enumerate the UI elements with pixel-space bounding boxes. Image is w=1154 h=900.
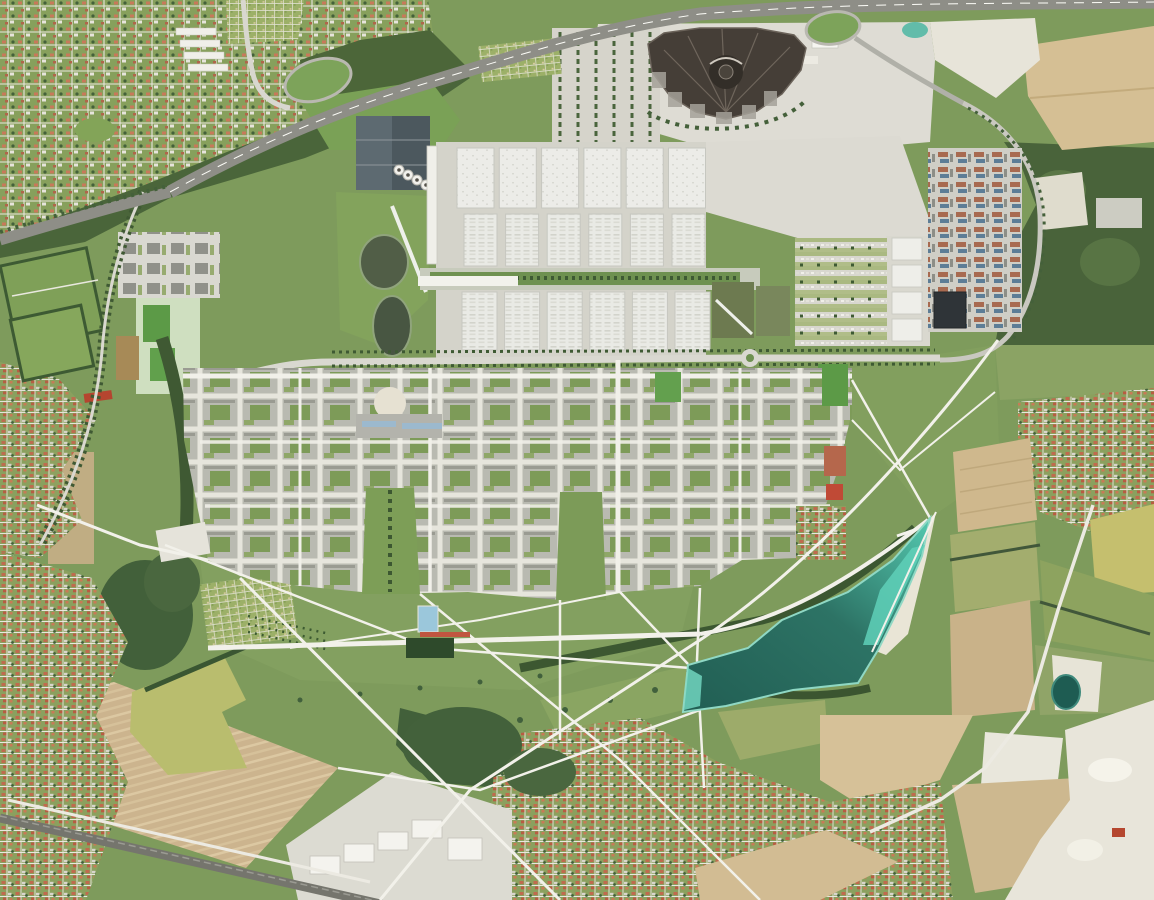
field-right-olive-1 — [950, 522, 1040, 612]
park-bush-scatter-2-4 — [478, 680, 483, 685]
sports-pitch-east — [822, 368, 848, 406]
fan-wing-4 — [716, 112, 732, 124]
field-right-speckled — [950, 600, 1035, 718]
formal-garden-2 — [10, 305, 93, 381]
pond-se — [1052, 675, 1080, 709]
allotment-gardens-sw — [200, 572, 298, 650]
ne-small-hall-4 — [892, 319, 922, 341]
exhibition-hall-row1-6 — [669, 148, 706, 208]
solar-roof-hall — [934, 292, 966, 328]
sports-pitch-dirt — [116, 336, 139, 380]
park-bush-scatter-1-4 — [652, 687, 658, 693]
gravel-pit-ne — [1035, 172, 1088, 230]
pond-ne-small — [902, 22, 928, 38]
exhibition-hall-row3-6 — [675, 292, 710, 350]
rowhouse-cluster — [796, 506, 846, 560]
apartment-row-4 — [188, 64, 228, 71]
apartment-row-1 — [176, 28, 216, 35]
industrial-shed-5 — [448, 838, 482, 860]
exhibition-hall-row2-1 — [464, 214, 497, 266]
green-roof-hall-2 — [756, 286, 790, 336]
field-right-tan — [953, 438, 1037, 532]
exhibition-hall-row2-2 — [506, 214, 539, 266]
apartment-row-2 — [180, 40, 220, 47]
office-campus-west — [118, 232, 220, 298]
woods-ne-light-2 — [1080, 238, 1140, 286]
fan-wing-3 — [690, 104, 705, 118]
park-red-track — [420, 632, 470, 637]
woods-sw-2 — [144, 552, 200, 612]
aerial-photo — [0, 0, 1154, 900]
parking-rows-east — [795, 238, 887, 346]
red-roof-school — [826, 484, 843, 500]
green-wedge-west — [362, 488, 420, 594]
exhibition-hall-row2-4 — [589, 214, 622, 266]
clarifier-tank-center-1 — [397, 168, 401, 172]
exhibition-hall-row2-5 — [630, 214, 663, 266]
exhibition-hall-row3-4 — [590, 292, 625, 350]
messe-glass-corridor — [418, 276, 518, 286]
gravel-plant-red-roof — [1112, 828, 1125, 837]
shopping-center-blue-roof-2 — [402, 423, 442, 429]
exhibition-hall-row1-1 — [457, 148, 494, 208]
park-bush-scatter-2-5 — [538, 674, 543, 679]
exhibition-hall-row1-5 — [626, 148, 663, 208]
industrial-shed-2 — [344, 844, 374, 862]
shopping-center-blue-roof-1 — [362, 421, 396, 427]
woods-s-park-1 — [402, 707, 522, 783]
park-bush-scatter-2-1 — [298, 698, 303, 703]
exhibition-hall-row3-3 — [547, 292, 582, 350]
green-axis-east — [556, 492, 606, 600]
school-pitch — [655, 372, 681, 402]
messe-pond-south — [373, 296, 411, 356]
ne-small-hall-2 — [892, 265, 922, 287]
sports-pitch-1 — [143, 305, 170, 342]
park-hedge-block — [406, 638, 454, 658]
red-court-east — [824, 446, 846, 476]
suburb-lawn-2 — [75, 118, 115, 142]
gravel-heap-1 — [1088, 758, 1132, 782]
ne-small-hall-3 — [892, 292, 922, 314]
exhibition-hall-row1-3 — [542, 148, 579, 208]
exhibition-hall-row2-6 — [672, 214, 705, 266]
pale-yard-ne — [1096, 198, 1142, 228]
fan-wing-1 — [652, 72, 666, 88]
exhibition-hall-row3-2 — [505, 292, 540, 350]
fan-court-inner — [719, 65, 733, 79]
park-bush-scatter-2-3 — [418, 686, 423, 691]
allotments-top — [226, 0, 304, 44]
roundabout-center — [746, 354, 754, 362]
woods-s-park-2 — [504, 748, 576, 796]
exhibition-hall-row1-2 — [499, 148, 536, 208]
ne-small-hall-1 — [892, 238, 922, 260]
fan-wing-2 — [668, 92, 682, 107]
gravel-heap-2 — [1067, 839, 1103, 861]
park-pool — [418, 606, 438, 632]
aerial-photo-canvas — [0, 0, 1154, 900]
clarifier-tank-center-3 — [415, 178, 419, 182]
exhibition-hall-row3-5 — [632, 292, 667, 350]
retention-basin-west — [356, 116, 392, 190]
park-bush-scatter-1-1 — [517, 717, 523, 723]
fan-wing-5 — [742, 105, 756, 119]
exhibition-hall-row3-1 — [462, 292, 497, 350]
clarifier-tank-center-2 — [406, 173, 410, 177]
messe-pond-north — [360, 235, 408, 289]
fan-wing-6 — [764, 91, 777, 106]
exhibition-hall-row2-3 — [547, 214, 580, 266]
exhibition-hall-row1-4 — [584, 148, 621, 208]
industrial-shed-3 — [378, 832, 408, 850]
messe-west-entrance-building — [427, 146, 437, 264]
apartment-row-3 — [184, 52, 224, 59]
